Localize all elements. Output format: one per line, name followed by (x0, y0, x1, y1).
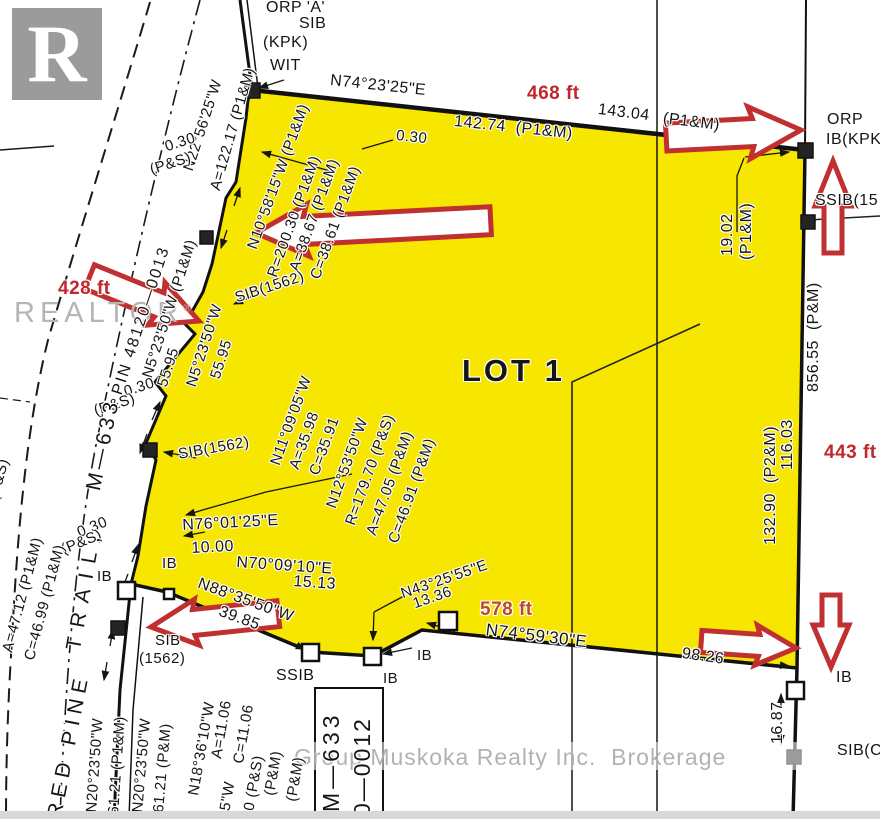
map-label: 443 ft (824, 443, 877, 462)
map-label: 578 ft (480, 600, 533, 619)
map-label: LOT 1 (462, 355, 565, 386)
map-label: SIB (155, 633, 181, 648)
realtor-logo: R (12, 8, 102, 100)
map-label: (1562) (139, 651, 185, 666)
map-label: M—633 (320, 711, 343, 812)
map-label: ORP 'A' (266, 0, 325, 16)
map-label: IB (417, 648, 432, 663)
map-label: IB(KPK (826, 132, 880, 148)
map-label: 10.00 (191, 539, 234, 557)
map-label: 856.55 (P&M) (806, 282, 822, 392)
map-label: SSIB (276, 668, 314, 684)
map-label: SSIB(15 (815, 193, 878, 209)
map-label: 468 ft (527, 84, 580, 103)
map-label: (KPK) (263, 35, 308, 51)
east-boundary-extension (805, 0, 806, 150)
map-label: 19.02 (720, 213, 736, 256)
map-label: SIB (299, 16, 326, 32)
map-label: 132.90 (P2&M) (763, 426, 779, 545)
survey-map-canvas: R REALTOR® Group Muskoka Realty Inc. Bro… (0, 0, 880, 819)
map-label: 0.30 (395, 128, 428, 146)
map-label: IB (836, 670, 852, 686)
map-label: 116.03 (780, 419, 796, 470)
realtor-logo-letter: R (27, 13, 86, 95)
map-label: ORP (827, 112, 863, 128)
map-label: IB (383, 671, 398, 686)
map-label: 16.87 (770, 701, 786, 744)
registered-mark-icon: ® (183, 302, 191, 314)
map-label: SIB(C (837, 743, 880, 759)
map-label: 15.13 (293, 574, 337, 593)
scan-edge (0, 811, 880, 819)
map-label: 428 ft (58, 279, 111, 298)
map-label: IB (97, 569, 112, 584)
survey-linework (0, 0, 880, 819)
map-label: (P1&M) (739, 203, 755, 260)
map-label: 0—0012 (351, 717, 374, 816)
map-label: WIT (270, 58, 301, 74)
map-label: IB (162, 556, 177, 571)
